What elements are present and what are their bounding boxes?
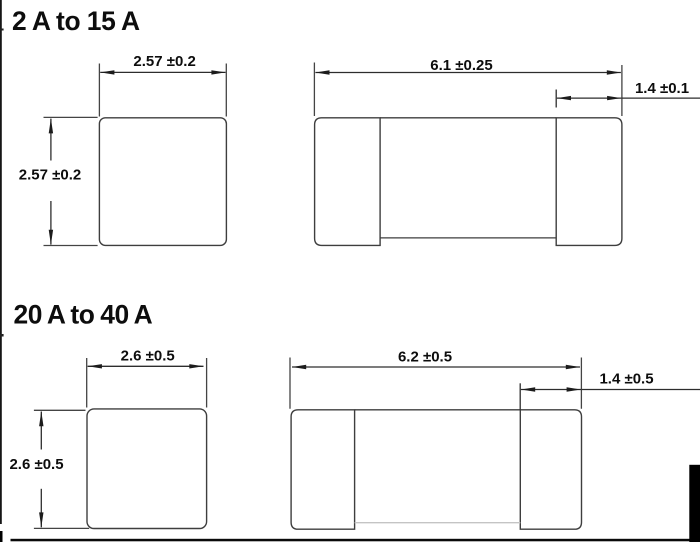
- svg-text:6.2 ±0.5: 6.2 ±0.5: [398, 349, 452, 366]
- svg-text:2 A to 15 A: 2 A to 15 A: [12, 6, 140, 36]
- svg-text:1.4 ±0.1: 1.4 ±0.1: [635, 80, 689, 97]
- svg-text:2.6 ±0.5: 2.6 ±0.5: [121, 348, 175, 365]
- svg-text:2.6 ±0.5: 2.6 ±0.5: [9, 456, 63, 473]
- svg-text:6.1 ±0.25: 6.1 ±0.25: [430, 57, 492, 74]
- svg-text:2.57 ±0.2: 2.57 ±0.2: [133, 53, 195, 70]
- svg-text:1.4 ±0.5: 1.4 ±0.5: [599, 370, 653, 387]
- svg-text:20 A to 40 A: 20 A to 40 A: [14, 299, 153, 329]
- svg-text:2.57 ±0.2: 2.57 ±0.2: [19, 167, 81, 184]
